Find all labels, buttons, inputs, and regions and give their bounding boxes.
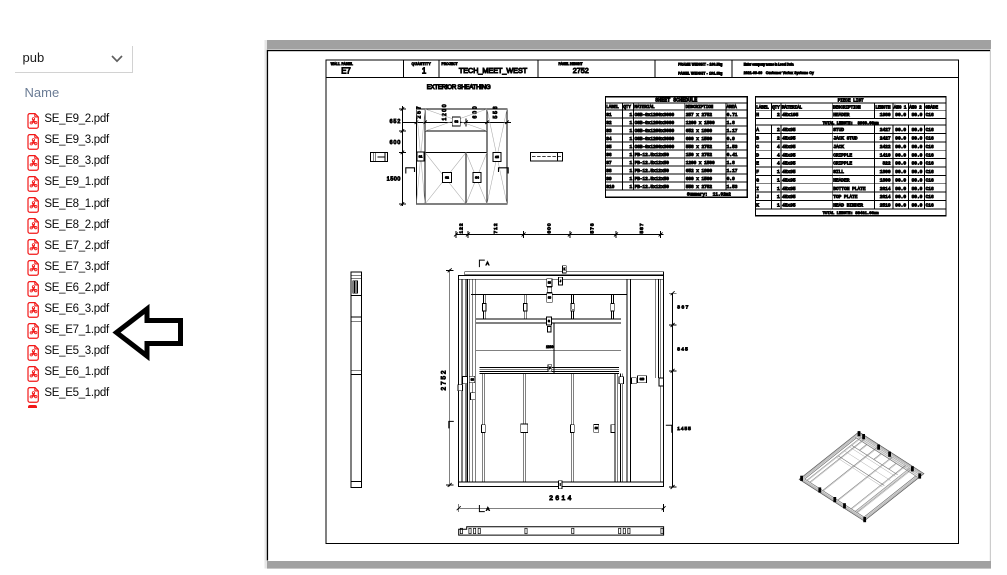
svg-text:45x95: 45x95 — [782, 136, 796, 142]
svg-text:C16: C16 — [926, 144, 934, 150]
svg-text:PANEL WEIGHT - 191.3kg: PANEL WEIGHT - 191.3kg — [678, 72, 722, 76]
svg-text:652 x 1800: 652 x 1800 — [686, 129, 713, 134]
svg-text:K: K — [756, 203, 759, 209]
svg-text:AREA: AREA — [727, 106, 738, 110]
svg-text:652 x 1800: 652 x 1800 — [686, 169, 713, 174]
svg-text:S4: S4 — [606, 136, 612, 142]
svg-text:QTY: QTY — [772, 106, 780, 110]
svg-text:600: 600 — [547, 223, 553, 233]
svg-text:90.0: 90.0 — [912, 203, 923, 209]
svg-text:S9: S9 — [606, 176, 612, 182]
svg-text:LABEL: LABEL — [756, 106, 769, 110]
svg-text:C16: C16 — [926, 169, 934, 175]
svg-text:1500: 1500 — [387, 176, 401, 182]
svg-text:587: 587 — [639, 223, 645, 233]
svg-text:OSB-9x1200x3000: OSB-9x1200x3000 — [635, 145, 675, 150]
svg-text:ANG 2: ANG 2 — [909, 106, 922, 110]
svg-text:PB-12.5x12x50: PB-12.5x12x50 — [635, 161, 670, 166]
svg-text:G: G — [548, 320, 550, 323]
svg-text:STUD: STUD — [833, 127, 844, 133]
svg-text:2752: 2752 — [441, 370, 448, 390]
svg-text:H: H — [756, 112, 759, 118]
svg-text:1.17: 1.17 — [727, 169, 738, 174]
svg-text:HEAD BINDER: HEAD BINDER — [833, 203, 863, 209]
svg-text:45x95: 45x95 — [782, 194, 796, 200]
svg-text:558 x 2752: 558 x 2752 — [686, 185, 713, 190]
svg-text:TECH_MEET_WEST: TECH_MEET_WEST — [459, 66, 528, 75]
svg-text:90.0: 90.0 — [912, 112, 923, 118]
svg-text:2614: 2614 — [880, 194, 891, 200]
svg-text:MATERIAL: MATERIAL — [782, 106, 803, 110]
svg-text:S1: S1 — [419, 155, 423, 159]
svg-text:90.0: 90.0 — [895, 161, 906, 167]
svg-text:DESCRIPTION: DESCRIPTION — [833, 106, 861, 110]
svg-text:1200 x 1500: 1200 x 1500 — [686, 121, 715, 126]
svg-text:E: E — [756, 161, 759, 167]
svg-text:F: F — [756, 169, 759, 175]
svg-text:45x95: 45x95 — [782, 203, 796, 209]
svg-text:C16: C16 — [926, 177, 934, 183]
svg-text:PB-12.5x12x50: PB-12.5x12x50 — [635, 153, 670, 158]
svg-text:90.0: 90.0 — [912, 152, 923, 158]
svg-text:S10: S10 — [606, 184, 614, 190]
svg-text:C16: C16 — [926, 161, 934, 167]
svg-text:845: 845 — [677, 346, 688, 352]
svg-text:C16: C16 — [926, 152, 934, 158]
svg-text:45x95: 45x95 — [782, 127, 796, 133]
svg-text:DESCRIPTION: DESCRIPTION — [686, 106, 714, 110]
svg-text:A: A — [756, 127, 759, 133]
svg-text:CRIPPLE: CRIPPLE — [833, 161, 852, 167]
svg-text:1: 1 — [629, 128, 632, 134]
svg-text:S8: S8 — [606, 168, 612, 174]
svg-text:OSB-9x1200x3000: OSB-9x1200x3000 — [635, 121, 675, 126]
svg-text:C16: C16 — [926, 203, 934, 209]
svg-text:2519: 2519 — [880, 203, 891, 209]
svg-text:E7: E7 — [341, 67, 351, 76]
svg-text:90.0: 90.0 — [912, 144, 923, 150]
svg-text:S5: S5 — [495, 155, 499, 159]
svg-text:CRIPPLE: CRIPPLE — [833, 152, 852, 158]
svg-text:S5: S5 — [606, 144, 612, 150]
svg-text:0.71: 0.71 — [727, 113, 738, 118]
svg-text:712: 712 — [493, 223, 499, 233]
svg-text:C16: C16 — [926, 112, 934, 118]
svg-text:90.0: 90.0 — [895, 194, 906, 200]
svg-text:1: 1 — [629, 144, 632, 150]
svg-text:1.53: 1.53 — [727, 145, 738, 150]
svg-text:C16: C16 — [926, 186, 934, 192]
svg-text:257 x 2752: 257 x 2752 — [686, 113, 713, 118]
svg-text:90.0: 90.0 — [895, 144, 906, 150]
svg-text:HEADER: HEADER — [833, 112, 850, 118]
svg-text:LABEL: LABEL — [606, 106, 619, 110]
svg-text:2021-09-09 Customer Vertex S: 2021-09-09 Customer Vertex Systems Oy — [744, 71, 814, 75]
svg-text:G: G — [756, 177, 759, 183]
svg-text:S2: S2 — [606, 120, 612, 126]
svg-text:S2: S2 — [445, 176, 449, 180]
svg-text:1980: 1980 — [880, 112, 891, 118]
svg-text:1: 1 — [629, 152, 632, 158]
svg-text:90.0: 90.0 — [895, 152, 906, 158]
svg-text:90.0: 90.0 — [912, 177, 923, 183]
svg-text:1: 1 — [629, 136, 632, 142]
svg-text:1410: 1410 — [880, 152, 891, 158]
svg-text:I: I — [756, 186, 759, 192]
svg-text:90.0: 90.0 — [912, 169, 923, 175]
svg-text:45x95: 45x95 — [782, 144, 796, 150]
svg-text:45x95: 45x95 — [782, 177, 796, 183]
svg-text:QUANTITY: QUANTITY — [412, 62, 432, 66]
svg-text:OSB-9x1200x3000: OSB-9x1200x3000 — [635, 113, 675, 118]
svg-text:45x95: 45x95 — [782, 152, 796, 158]
svg-text:90.0: 90.0 — [895, 112, 906, 118]
svg-text:C16: C16 — [926, 136, 934, 142]
svg-text:JACK: JACK — [833, 144, 844, 150]
svg-text:PB-12.5x12x50: PB-12.5x12x50 — [635, 185, 670, 190]
svg-text:1: 1 — [777, 186, 780, 192]
svg-text:578: 578 — [590, 223, 596, 233]
svg-text:90.0: 90.0 — [895, 136, 906, 142]
svg-text:PB-12.5x12x50: PB-12.5x12x50 — [635, 177, 670, 182]
svg-text:1: 1 — [777, 194, 780, 200]
svg-text:1800: 1800 — [880, 169, 891, 175]
svg-text:TOTAL LENGTH: 38431.00mm: TOTAL LENGTH: 38431.00mm — [823, 212, 880, 216]
svg-text:OSB-9x1200x3000: OSB-9x1200x3000 — [635, 129, 675, 134]
svg-text:150 x 2752: 150 x 2752 — [686, 153, 713, 158]
svg-text:1.53: 1.53 — [727, 185, 738, 190]
svg-text:90.0: 90.0 — [895, 169, 906, 175]
svg-text:1455: 1455 — [677, 426, 691, 432]
svg-text:1: 1 — [629, 168, 632, 174]
svg-text:1: 1 — [629, 176, 632, 182]
svg-text:2422: 2422 — [880, 144, 891, 150]
svg-text:0.9: 0.9 — [727, 137, 735, 142]
svg-text:C16: C16 — [926, 127, 934, 133]
svg-text:2: 2 — [777, 112, 780, 118]
svg-text:Summary: 11.92m2: Summary: 11.92m2 — [687, 193, 731, 198]
svg-text:558 x 2752: 558 x 2752 — [686, 145, 713, 150]
svg-text:JACK STUD: JACK STUD — [833, 136, 858, 142]
svg-text:600 x 1500: 600 x 1500 — [686, 137, 713, 142]
svg-text:90.0: 90.0 — [895, 186, 906, 192]
svg-text:90.0: 90.0 — [895, 203, 906, 209]
svg-text:2: 2 — [777, 136, 780, 142]
svg-text:OSB-9x1200x3000: OSB-9x1200x3000 — [635, 137, 675, 142]
svg-text:D: D — [756, 152, 759, 158]
svg-text:TOP PLATE: TOP PLATE — [833, 194, 858, 200]
svg-text:2: 2 — [777, 127, 780, 133]
svg-text:PB-12.5x12x50: PB-12.5x12x50 — [635, 169, 670, 174]
svg-text:S10: S10 — [640, 378, 645, 381]
svg-text:HEADER: HEADER — [833, 177, 850, 183]
svg-text:45x95: 45x95 — [782, 186, 796, 192]
svg-text:S7: S7 — [606, 160, 612, 166]
svg-text:90.0: 90.0 — [912, 161, 923, 167]
svg-text:367: 367 — [677, 305, 688, 311]
svg-text:S3: S3 — [606, 128, 612, 134]
svg-text:S6: S6 — [606, 152, 612, 158]
svg-text:90.0: 90.0 — [895, 127, 906, 133]
svg-text:322: 322 — [882, 161, 890, 167]
svg-text:1: 1 — [777, 169, 780, 175]
svg-text:600: 600 — [390, 140, 401, 146]
svg-text:QTY: QTY — [623, 106, 631, 110]
svg-text:EXTERIOR SHEATHING: EXTERIOR SHEATHING — [427, 84, 491, 91]
svg-text:LENGTH: LENGTH — [875, 106, 891, 110]
svg-text:45x195: 45x195 — [782, 112, 799, 118]
svg-text:652: 652 — [390, 119, 401, 125]
svg-text:C: C — [756, 144, 759, 150]
svg-text:1200 x 1500: 1200 x 1500 — [686, 161, 715, 166]
svg-text:FRAME WEIGHT - 109.5kg: FRAME WEIGHT - 109.5kg — [678, 62, 722, 66]
svg-text:B: B — [756, 136, 759, 142]
svg-text:1: 1 — [422, 67, 426, 76]
svg-text:S3: S3 — [454, 120, 458, 124]
svg-text:122: 122 — [459, 223, 465, 233]
svg-text:600 x 1500: 600 x 1500 — [686, 177, 713, 182]
svg-text:MATERIAL: MATERIAL — [634, 106, 655, 110]
svg-text:45x95: 45x95 — [782, 161, 796, 167]
svg-text:C16: C16 — [926, 194, 934, 200]
svg-text:2427: 2427 — [880, 127, 891, 133]
svg-text:J: J — [756, 194, 759, 200]
svg-text:45x95: 45x95 — [782, 169, 796, 175]
svg-text:1.8: 1.8 — [727, 161, 735, 166]
svg-text:S4: S4 — [475, 176, 479, 180]
svg-text:1: 1 — [629, 120, 632, 126]
svg-text:558: 558 — [493, 106, 499, 118]
svg-text:1: 1 — [777, 177, 780, 183]
svg-text:0.41: 0.41 — [727, 153, 738, 158]
svg-text:2614: 2614 — [880, 186, 891, 192]
svg-text:BOTTOM PLATE: BOTTOM PLATE — [833, 186, 866, 192]
svg-text:2427: 2427 — [880, 136, 891, 142]
svg-text:90.0: 90.0 — [912, 136, 923, 142]
svg-text:90.0: 90.0 — [912, 186, 923, 192]
svg-text:90.0: 90.0 — [912, 194, 923, 200]
svg-text:1800: 1800 — [546, 345, 553, 349]
svg-text:4: 4 — [777, 161, 780, 167]
svg-text:257: 257 — [417, 106, 423, 118]
svg-text:90.0: 90.0 — [895, 177, 906, 183]
svg-text:1800: 1800 — [880, 177, 891, 183]
svg-text:2752: 2752 — [573, 66, 589, 75]
svg-text:4: 4 — [777, 144, 780, 150]
svg-text:WALL PANEL: WALL PANEL — [331, 62, 353, 66]
svg-text:90.0: 90.0 — [912, 127, 923, 133]
svg-text:GRADE: GRADE — [925, 106, 938, 110]
svg-text:1: 1 — [777, 203, 780, 209]
svg-text:ANG 1: ANG 1 — [894, 106, 907, 110]
svg-text:1.17: 1.17 — [727, 129, 738, 134]
svg-text:1200: 1200 — [442, 104, 448, 120]
svg-text:1: 1 — [629, 160, 632, 166]
svg-text:S1: S1 — [606, 112, 612, 118]
svg-text:SILL: SILL — [833, 169, 844, 175]
svg-text:4: 4 — [777, 152, 780, 158]
svg-text:1: 1 — [629, 112, 632, 118]
svg-text:Enter company name in Local Da: Enter company name in Local Data — [744, 62, 794, 66]
svg-text:1.8: 1.8 — [727, 121, 735, 126]
svg-text:1: 1 — [629, 184, 632, 190]
svg-text:PROJECT: PROJECT — [442, 62, 458, 66]
svg-text:0.9: 0.9 — [727, 177, 735, 182]
